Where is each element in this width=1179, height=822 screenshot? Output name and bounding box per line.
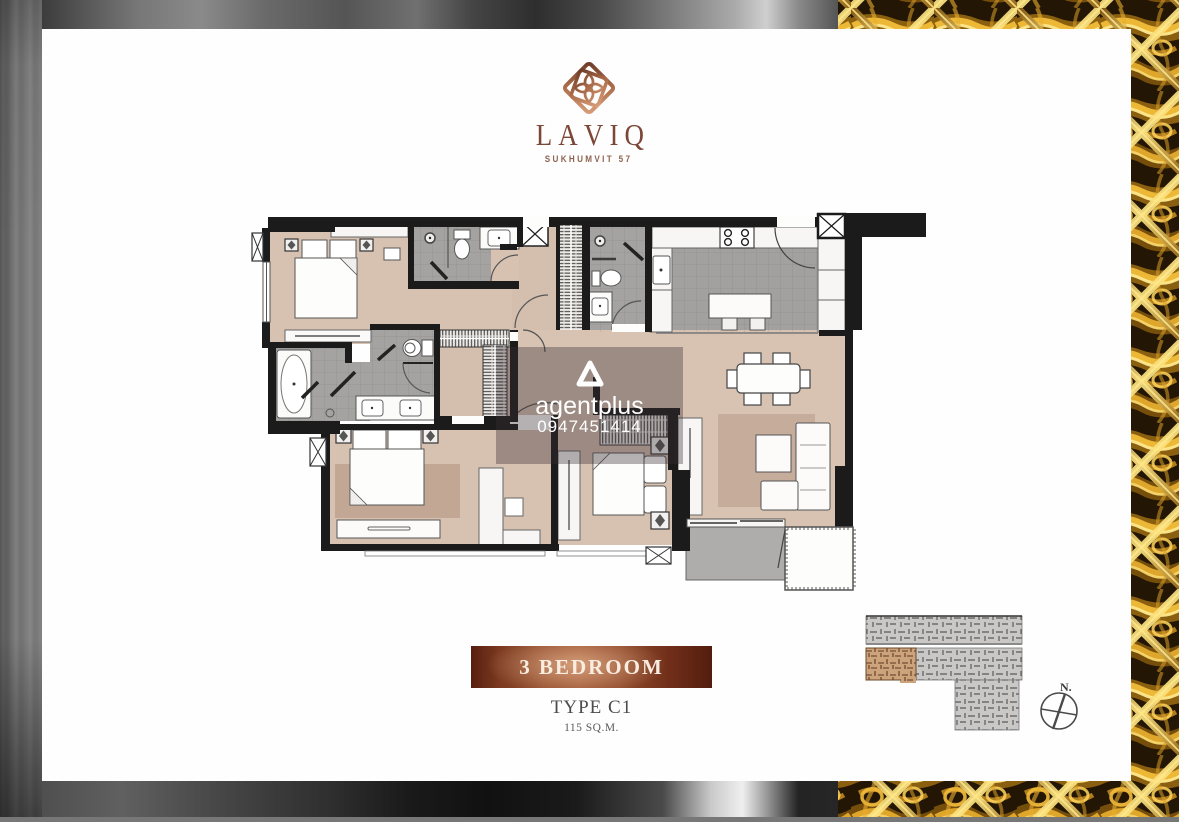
svg-text:N.: N. bbox=[1060, 680, 1072, 694]
